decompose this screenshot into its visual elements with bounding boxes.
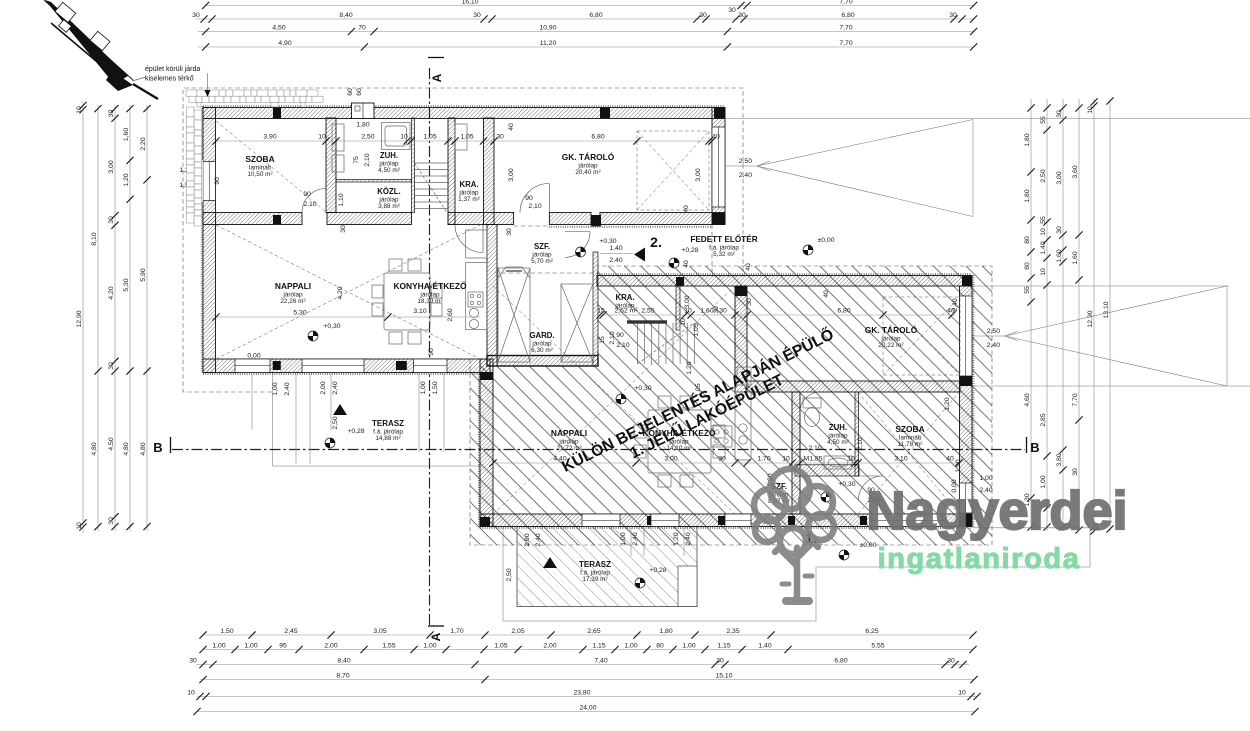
svg-text:90: 90 bbox=[303, 191, 311, 198]
svg-text:1,15: 1,15 bbox=[717, 643, 730, 650]
svg-text:30: 30 bbox=[506, 228, 513, 236]
svg-text:3,00: 3,00 bbox=[108, 160, 115, 173]
svg-text:14,10 m²: 14,10 m² bbox=[666, 445, 691, 452]
svg-text:24,00: 24,00 bbox=[579, 705, 596, 712]
svg-text:10: 10 bbox=[782, 456, 790, 463]
svg-text:2,10: 2,10 bbox=[857, 437, 864, 450]
svg-text:GK. TÁROLÓ: GK. TÁROLÓ bbox=[562, 151, 615, 162]
svg-text:40: 40 bbox=[823, 290, 830, 298]
svg-text:KONYHA-ÉTKEZŐ: KONYHA-ÉTKEZŐ bbox=[393, 280, 467, 291]
svg-text:30: 30 bbox=[728, 7, 736, 14]
svg-text:30: 30 bbox=[738, 12, 746, 19]
svg-text:TERASZ: TERASZ bbox=[579, 560, 611, 569]
svg-text:30: 30 bbox=[192, 12, 200, 19]
svg-text:2,40: 2,40 bbox=[952, 298, 959, 311]
svg-text:17,39 m²: 17,39 m² bbox=[582, 576, 607, 583]
svg-text:8,40: 8,40 bbox=[337, 658, 350, 665]
svg-text:20,22 m²: 20,22 m² bbox=[878, 342, 903, 349]
svg-text:4,80: 4,80 bbox=[140, 442, 147, 455]
svg-text:12,90: 12,90 bbox=[1087, 310, 1094, 327]
svg-text:60: 60 bbox=[356, 88, 363, 96]
svg-text:+0,30: +0,30 bbox=[323, 323, 340, 330]
svg-text:30: 30 bbox=[713, 306, 720, 314]
svg-text:30: 30 bbox=[699, 12, 707, 19]
svg-text:4,80: 4,80 bbox=[123, 442, 130, 455]
svg-text:20,40 m²: 20,40 m² bbox=[575, 169, 600, 176]
svg-text:6,80: 6,80 bbox=[837, 308, 850, 315]
svg-text:7,70: 7,70 bbox=[839, 25, 852, 32]
svg-text:60: 60 bbox=[347, 88, 354, 96]
svg-text:2,40: 2,40 bbox=[739, 172, 752, 179]
svg-text:+0,28: +0,28 bbox=[649, 567, 666, 574]
svg-text:30: 30 bbox=[108, 517, 115, 525]
svg-text:10: 10 bbox=[187, 690, 195, 697]
svg-text:1,00: 1,00 bbox=[423, 643, 436, 650]
svg-text:2,50: 2,50 bbox=[739, 158, 752, 165]
svg-text:80: 80 bbox=[1024, 262, 1031, 270]
svg-text:2,40: 2,40 bbox=[685, 532, 692, 545]
svg-text:3,00: 3,00 bbox=[1056, 171, 1063, 184]
svg-text:1,70: 1,70 bbox=[450, 628, 463, 635]
svg-text:2,40: 2,40 bbox=[535, 533, 542, 546]
svg-text:4,80: 4,80 bbox=[91, 442, 98, 455]
svg-text:3,10: 3,10 bbox=[894, 456, 907, 463]
svg-text:5,55: 5,55 bbox=[871, 643, 884, 650]
svg-text:1,60: 1,60 bbox=[1072, 251, 1079, 264]
svg-text:3,00: 3,00 bbox=[695, 168, 702, 181]
svg-text:1,20: 1,20 bbox=[686, 361, 693, 374]
svg-text:15: 15 bbox=[599, 336, 606, 344]
svg-text:8,10: 8,10 bbox=[91, 232, 98, 245]
svg-text:6,30 m²: 6,30 m² bbox=[531, 347, 553, 354]
svg-text:3,60: 3,60 bbox=[1072, 165, 1079, 178]
svg-text:10,50 m²: 10,50 m² bbox=[247, 171, 272, 178]
svg-text:2,35: 2,35 bbox=[726, 628, 739, 635]
svg-text:95: 95 bbox=[279, 643, 287, 650]
svg-text:1,10: 1,10 bbox=[338, 193, 345, 206]
svg-text:kiselemes térkő: kiselemes térkő bbox=[145, 76, 194, 83]
svg-text:2,85: 2,85 bbox=[1040, 413, 1047, 426]
svg-text:1,00: 1,00 bbox=[682, 643, 695, 650]
svg-text:1,20: 1,20 bbox=[673, 532, 680, 545]
svg-text:3,88 m²: 3,88 m² bbox=[378, 203, 400, 210]
svg-text:GK. TÁROLÓ: GK. TÁROLÓ bbox=[865, 324, 918, 335]
svg-text:40: 40 bbox=[508, 123, 515, 131]
svg-text:10: 10 bbox=[1040, 268, 1047, 276]
svg-text:13,10: 13,10 bbox=[1103, 301, 1110, 318]
svg-text:70: 70 bbox=[358, 25, 366, 32]
svg-text:1,80: 1,80 bbox=[1024, 189, 1031, 202]
svg-text:6,80: 6,80 bbox=[834, 658, 847, 665]
svg-text:10: 10 bbox=[847, 456, 855, 463]
svg-text:30: 30 bbox=[746, 298, 753, 306]
svg-text:1,40: 1,40 bbox=[758, 643, 771, 650]
svg-text:30: 30 bbox=[473, 12, 481, 19]
svg-text:22,26 m²: 22,26 m² bbox=[280, 298, 305, 305]
svg-text:1,40: 1,40 bbox=[1040, 241, 1047, 254]
svg-text:5,90: 5,90 bbox=[140, 268, 147, 281]
svg-text:+0,30: +0,30 bbox=[599, 238, 616, 245]
svg-text:1,70: 1,70 bbox=[757, 456, 770, 463]
svg-text:ingatlaniroda: ingatlaniroda bbox=[878, 543, 1081, 575]
svg-text:80: 80 bbox=[656, 643, 664, 650]
svg-text:2,40: 2,40 bbox=[284, 382, 291, 395]
svg-text:15,10: 15,10 bbox=[715, 673, 732, 680]
svg-text:2,50: 2,50 bbox=[1040, 169, 1047, 182]
svg-text:30: 30 bbox=[1056, 226, 1063, 234]
svg-text:8,70: 8,70 bbox=[336, 673, 349, 680]
svg-text:2,40: 2,40 bbox=[332, 381, 339, 394]
svg-text:2,10: 2,10 bbox=[808, 445, 821, 452]
svg-text:90: 90 bbox=[428, 348, 435, 356]
svg-text:TERASZ: TERASZ bbox=[372, 419, 404, 428]
svg-text:10: 10 bbox=[76, 106, 83, 114]
svg-text:SZOBA: SZOBA bbox=[895, 424, 924, 434]
svg-text:4,20: 4,20 bbox=[337, 286, 344, 299]
svg-text:2,52 m²: 2,52 m² bbox=[614, 308, 638, 315]
svg-text:1,00: 1,00 bbox=[272, 382, 279, 395]
svg-text:11,78 m²: 11,78 m² bbox=[898, 441, 923, 448]
svg-text:1,60: 1,60 bbox=[1056, 249, 1063, 262]
svg-text:KÖZL.: KÖZL. bbox=[377, 187, 400, 196]
svg-text:1,05: 1,05 bbox=[693, 323, 700, 336]
svg-text:2,45: 2,45 bbox=[284, 628, 297, 635]
svg-text:6,80: 6,80 bbox=[589, 12, 602, 19]
svg-text:B: B bbox=[1030, 440, 1039, 455]
svg-text:2,00: 2,00 bbox=[324, 643, 337, 650]
svg-text:2,40: 2,40 bbox=[609, 257, 622, 264]
svg-text:30: 30 bbox=[108, 216, 115, 224]
svg-text:2,40: 2,40 bbox=[632, 532, 639, 545]
svg-text:7,40: 7,40 bbox=[594, 658, 607, 665]
svg-text:55: 55 bbox=[1040, 216, 1047, 224]
svg-text:18,39 m²: 18,39 m² bbox=[417, 298, 442, 305]
svg-text:épület körüli járda: épület körüli járda bbox=[145, 66, 200, 73]
svg-text:2,10: 2,10 bbox=[364, 153, 371, 166]
svg-text:2,50: 2,50 bbox=[332, 416, 339, 429]
svg-text:1,15: 1,15 bbox=[592, 643, 605, 650]
svg-text:2,60: 2,60 bbox=[447, 308, 454, 321]
svg-text:10,90: 10,90 bbox=[539, 25, 556, 32]
svg-text:30: 30 bbox=[1056, 110, 1063, 118]
svg-text:30: 30 bbox=[1072, 468, 1079, 476]
svg-text:+0,28: +0,28 bbox=[347, 428, 364, 435]
svg-text:±0,00: ±0,00 bbox=[818, 237, 835, 244]
svg-text:30: 30 bbox=[949, 12, 957, 19]
svg-text:1,05: 1,05 bbox=[423, 134, 436, 141]
svg-text:3,10: 3,10 bbox=[413, 308, 426, 315]
svg-text:5,32 m²: 5,32 m² bbox=[713, 251, 735, 258]
svg-text:6,80: 6,80 bbox=[591, 134, 604, 141]
svg-text:1,00: 1,00 bbox=[212, 643, 225, 650]
svg-text:+0,30: +0,30 bbox=[634, 385, 651, 392]
svg-text:30: 30 bbox=[189, 658, 197, 665]
svg-text:30: 30 bbox=[719, 308, 727, 315]
svg-text:4,20: 4,20 bbox=[108, 286, 115, 299]
svg-text:M1,85: M1,85 bbox=[804, 456, 823, 463]
svg-text:4,50 m²: 4,50 m² bbox=[378, 167, 400, 174]
svg-text:8,40: 8,40 bbox=[339, 12, 352, 19]
svg-text:2,60: 2,60 bbox=[524, 533, 531, 546]
svg-text:1,00: 1,00 bbox=[624, 643, 637, 650]
svg-text:1,55: 1,55 bbox=[382, 643, 395, 650]
svg-text:4,50: 4,50 bbox=[108, 437, 115, 450]
svg-text:5,30: 5,30 bbox=[123, 278, 130, 291]
svg-text:2,10: 2,10 bbox=[528, 203, 541, 210]
svg-text:NAPPALI: NAPPALI bbox=[275, 281, 311, 291]
svg-text:1,60: 1,60 bbox=[123, 128, 130, 141]
svg-text:10: 10 bbox=[958, 690, 966, 697]
svg-text:2,50: 2,50 bbox=[506, 568, 513, 581]
svg-text:23,80: 23,80 bbox=[573, 690, 590, 697]
svg-text:6,25: 6,25 bbox=[865, 628, 878, 635]
svg-text:40: 40 bbox=[683, 260, 690, 268]
svg-text:0,00: 0,00 bbox=[247, 353, 260, 360]
svg-text:1,80: 1,80 bbox=[356, 122, 369, 129]
svg-text:1,00: 1,00 bbox=[244, 643, 257, 650]
svg-text:10: 10 bbox=[680, 318, 687, 326]
svg-text:10: 10 bbox=[318, 134, 326, 141]
svg-text:12,90: 12,90 bbox=[76, 310, 83, 327]
svg-text:10: 10 bbox=[1087, 106, 1094, 114]
svg-text:55: 55 bbox=[1024, 286, 1031, 294]
svg-text:1,37 m²: 1,37 m² bbox=[458, 196, 480, 203]
svg-text:10: 10 bbox=[76, 522, 83, 530]
svg-text:1,50: 1,50 bbox=[432, 381, 439, 394]
svg-text:2.: 2. bbox=[650, 234, 662, 250]
svg-text:10: 10 bbox=[400, 134, 408, 141]
svg-text:+0,30: +0,30 bbox=[838, 481, 855, 488]
svg-text:30: 30 bbox=[340, 225, 347, 233]
svg-text:7,70: 7,70 bbox=[1072, 393, 1079, 406]
svg-text:40: 40 bbox=[712, 134, 720, 141]
svg-text:1,20: 1,20 bbox=[123, 173, 130, 186]
svg-text:75: 75 bbox=[353, 156, 360, 164]
svg-text:KRA.: KRA. bbox=[615, 293, 634, 302]
svg-text:2,65: 2,65 bbox=[587, 628, 600, 635]
svg-text:SZF.: SZF. bbox=[534, 242, 550, 251]
svg-text:1,40: 1,40 bbox=[609, 245, 622, 252]
svg-text:1,00: 1,00 bbox=[420, 381, 427, 394]
svg-text:2,00: 2,00 bbox=[543, 643, 556, 650]
svg-text:5,30: 5,30 bbox=[293, 310, 306, 317]
svg-text:10: 10 bbox=[1040, 228, 1047, 236]
svg-text:30: 30 bbox=[947, 658, 955, 665]
svg-text:2,05: 2,05 bbox=[511, 628, 524, 635]
svg-text:1,05: 1,05 bbox=[494, 643, 507, 650]
svg-text:1,60: 1,60 bbox=[700, 308, 713, 315]
svg-text:2,55: 2,55 bbox=[641, 308, 654, 315]
svg-text:15: 15 bbox=[597, 308, 605, 315]
svg-text:11,20: 11,20 bbox=[540, 40, 557, 47]
svg-text:2,50: 2,50 bbox=[361, 134, 374, 141]
svg-text:16,10: 16,10 bbox=[461, 0, 478, 6]
svg-text:GARD.: GARD. bbox=[529, 331, 554, 340]
svg-text:3,00: 3,00 bbox=[508, 168, 515, 181]
svg-text:14,88 m²: 14,88 m² bbox=[375, 435, 400, 442]
svg-text:4,50 m²: 4,50 m² bbox=[827, 439, 849, 446]
svg-text:Nagyerdei: Nagyerdei bbox=[866, 481, 1127, 541]
svg-text:3,80: 3,80 bbox=[1056, 453, 1063, 466]
svg-text:4,90: 4,90 bbox=[278, 40, 291, 47]
svg-text:40: 40 bbox=[946, 456, 954, 463]
svg-text:30: 30 bbox=[718, 456, 726, 463]
svg-text:2,10: 2,10 bbox=[303, 201, 316, 208]
svg-text:1,20: 1,20 bbox=[944, 397, 951, 410]
svg-text:40: 40 bbox=[745, 263, 752, 271]
svg-text:6,80: 6,80 bbox=[841, 12, 854, 19]
svg-text:55: 55 bbox=[1040, 116, 1047, 124]
svg-text:5,70 m²: 5,70 m² bbox=[531, 258, 553, 265]
svg-text:4,50: 4,50 bbox=[272, 25, 285, 32]
svg-text:1,90: 1,90 bbox=[955, 459, 962, 472]
svg-text:40: 40 bbox=[683, 205, 690, 213]
svg-text:A: A bbox=[429, 632, 443, 641]
svg-text:3,00: 3,00 bbox=[664, 456, 677, 463]
svg-text:90: 90 bbox=[525, 195, 533, 202]
svg-text:30: 30 bbox=[496, 134, 504, 141]
svg-text:2,00: 2,00 bbox=[320, 381, 327, 394]
svg-text:7,70: 7,70 bbox=[839, 40, 852, 47]
svg-text:30: 30 bbox=[716, 658, 724, 665]
svg-text:±0,00: ±0,00 bbox=[860, 542, 877, 549]
svg-text:ZUH.: ZUH. bbox=[829, 423, 847, 432]
svg-text:2,20: 2,20 bbox=[140, 137, 147, 150]
svg-text:1,80: 1,80 bbox=[1024, 133, 1031, 146]
svg-text:A: A bbox=[430, 73, 444, 82]
svg-text:90: 90 bbox=[214, 177, 221, 185]
svg-text:NAPPALI: NAPPALI bbox=[551, 428, 587, 438]
svg-text:3,00: 3,00 bbox=[684, 295, 691, 308]
svg-text:B: B bbox=[153, 440, 162, 455]
svg-text:80: 80 bbox=[1024, 236, 1031, 244]
svg-text:1,05: 1,05 bbox=[460, 134, 473, 141]
svg-text:1,00: 1,00 bbox=[620, 532, 627, 545]
svg-text:7,70: 7,70 bbox=[839, 0, 852, 6]
svg-text:FEDETT ELŐTÉR: FEDETT ELŐTÉR bbox=[690, 233, 757, 244]
svg-text:30: 30 bbox=[108, 362, 115, 370]
svg-text:3,90: 3,90 bbox=[263, 134, 276, 141]
svg-text:+0,28: +0,28 bbox=[681, 247, 698, 254]
svg-text:SZOBA: SZOBA bbox=[245, 154, 274, 164]
svg-text:1,80: 1,80 bbox=[659, 628, 672, 635]
svg-text:3,05: 3,05 bbox=[373, 628, 386, 635]
svg-text:2,10: 2,10 bbox=[609, 331, 616, 344]
svg-text:2,10: 2,10 bbox=[616, 342, 629, 349]
svg-text:1,50: 1,50 bbox=[220, 628, 233, 635]
svg-text:KRA.: KRA. bbox=[459, 180, 478, 189]
svg-text:90: 90 bbox=[616, 332, 624, 339]
svg-text:30: 30 bbox=[108, 110, 115, 118]
svg-text:ZUH.: ZUH. bbox=[380, 151, 398, 160]
svg-text:4,60: 4,60 bbox=[1024, 393, 1031, 406]
